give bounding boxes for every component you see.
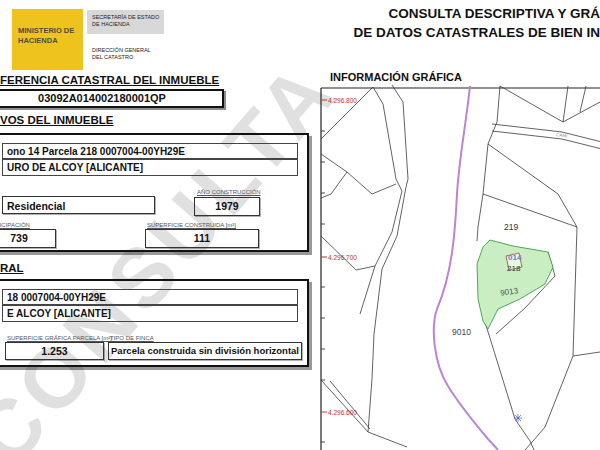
secretary-label: SECRETARÍA DE ESTADO DE HACIENDA [87,10,164,34]
inmueble-box: ono 14 Parcela 218 0007004-00YH29E URO D… [0,133,309,252]
parcel-label-014: 014 [508,253,522,262]
parcela-location-line1: 18 0007004-00YH29E [2,289,298,305]
document-title-line1: CONSULTA DESCRIPTIVA Y GRÁ [353,4,600,23]
coordinate-label-north-1: 4.296.800 [328,97,357,104]
section-map-title: INFORMACIÓN GRÁFICA [330,71,462,83]
section-inmueble-title: VOS DEL INMUEBLE [0,114,114,126]
section-referencia-title: FERENCIA CATASTRAL DEL INMUEBLE [0,74,219,86]
ano-construccion-value: 1979 [194,197,260,216]
uso-value: Residencial [2,196,155,214]
map-coordinate-labels: 4.296.800 4.296.700 4.296.600 [321,97,357,416]
cadastral-document: MINISTERIO DE HACIENDA SECRETARÍA DE EST… [0,0,600,450]
directorate-label: DIRECCIÓN GENERAL DEL CATASTRO [92,47,162,61]
map-axis-ticks [321,131,325,442]
participacion-value: 739 [0,229,56,248]
road-label-cami: CAMI [556,132,568,139]
parcela-box: 18 0007004-00YH29E E ALCOY [ALICANTE] SU… [0,279,309,367]
inmueble-location-line1: ono 14 Parcela 218 0007004-00YH29E [2,143,298,159]
superficie-construida-label: SUPERFICIE CONSTRUIDA [m²] [147,222,236,228]
superficie-grafica-label: SUPERFICIE GRÁFICA PARCELA [m²] [7,335,112,341]
parcel-label-9010: 9010 [452,327,471,337]
parcel-label-219: 219 [504,222,518,232]
inmueble-location-line2: URO DE ALCOY [ALICANTE] [2,159,298,176]
ministry-logo: MINISTERIO DE HACIENDA [12,9,83,70]
map-frame [321,88,600,450]
parcel-label-218: 218 [507,264,521,273]
ministry-name: MINISTERIO DE HACIENDA [18,26,80,45]
referencia-catastral-value: 03092A014002180001QP [0,89,224,108]
survey-marker-icon [514,414,522,422]
document-title: CONSULTA DESCRIPTIVA Y GRÁ DE DATOS CATA… [353,4,600,42]
tipo-finca-label: TIPO DE FINCA [110,335,154,341]
cadastral-map: 4.296.800 4.296.700 4.296.600 [316,84,600,450]
coordinate-label-north-3: 4.296.600 [328,409,357,416]
superficie-construida-value: 111 [145,229,259,248]
ano-construccion-label: AÑO CONSTRUCCIÓN [197,189,261,195]
document-title-line2: DE DATOS CATASTRALES DE BIEN IN [353,23,600,42]
parcela-location-line2: E ALCOY [ALICANTE] [2,305,298,322]
superficie-grafica-value: 1.253 [5,342,104,360]
section-parcela-title: RAL [0,262,24,274]
parcel-boundaries [321,85,600,450]
participacion-label: TICIPACIÓN [0,222,30,228]
tipo-finca-value: Parcela construida sin división horizont… [108,342,302,360]
